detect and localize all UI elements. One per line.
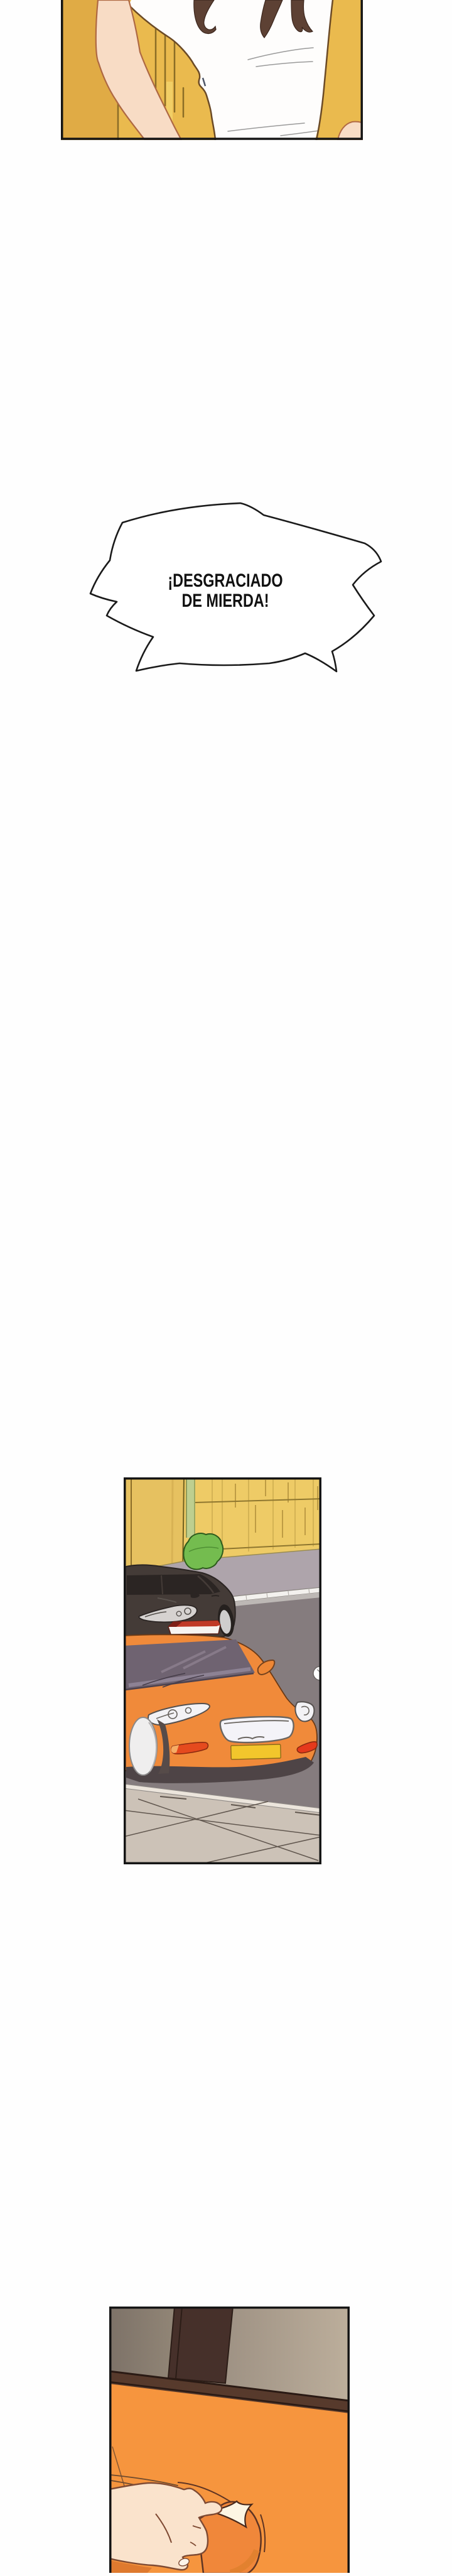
svg-text:DE MIERDA!: DE MIERDA! — [181, 590, 269, 611]
svg-text:¡DESGRACIADO: ¡DESGRACIADO — [168, 570, 282, 590]
